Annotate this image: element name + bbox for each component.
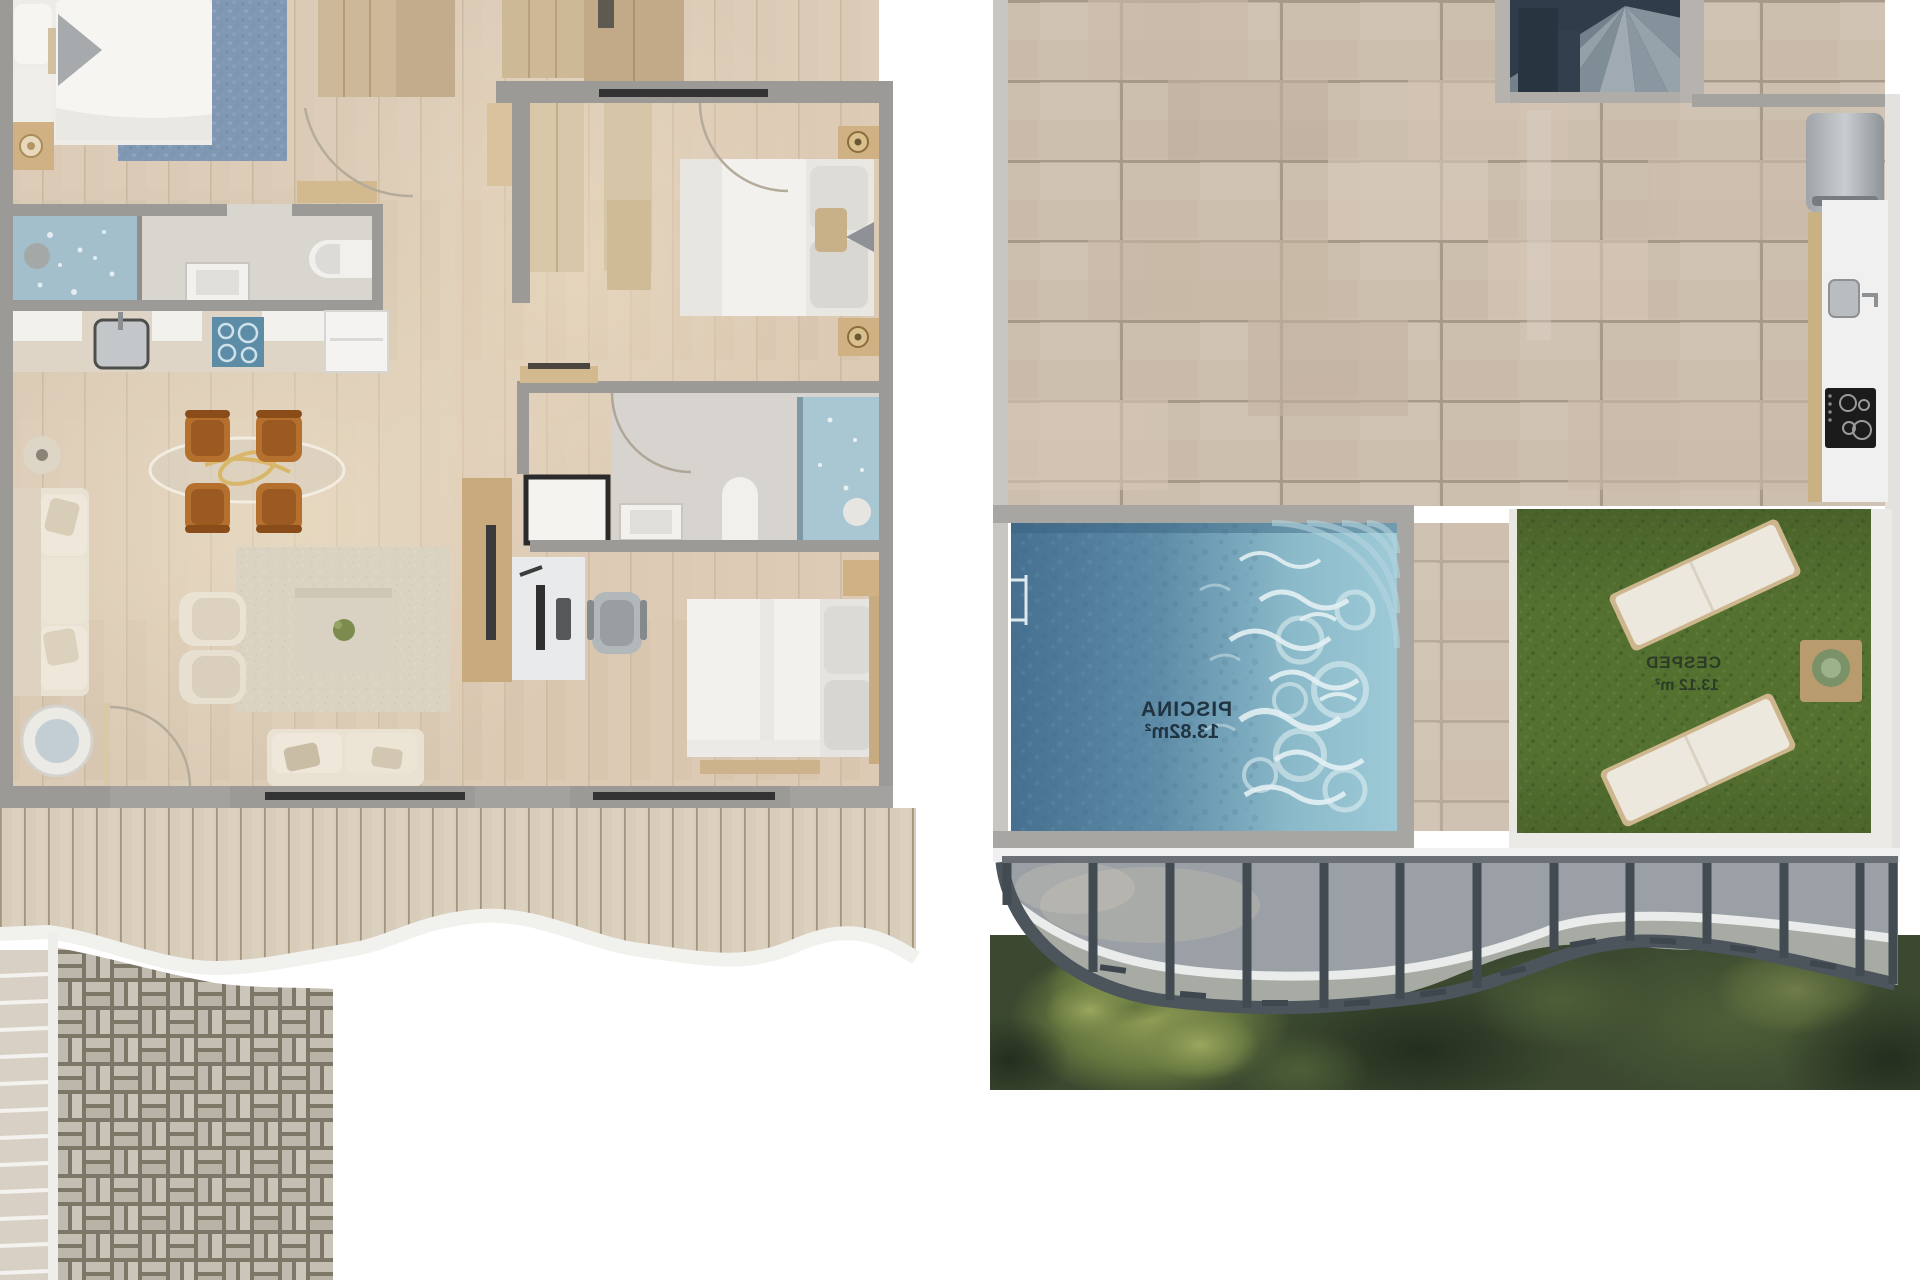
svg-text:13.12 m²: 13.12 m² <box>1655 677 1719 694</box>
svg-text:CESPED: CESPED <box>1645 653 1721 672</box>
svg-text:PISCINA: PISCINA <box>1140 698 1232 721</box>
svg-text:13.82m²: 13.82m² <box>1144 721 1219 743</box>
